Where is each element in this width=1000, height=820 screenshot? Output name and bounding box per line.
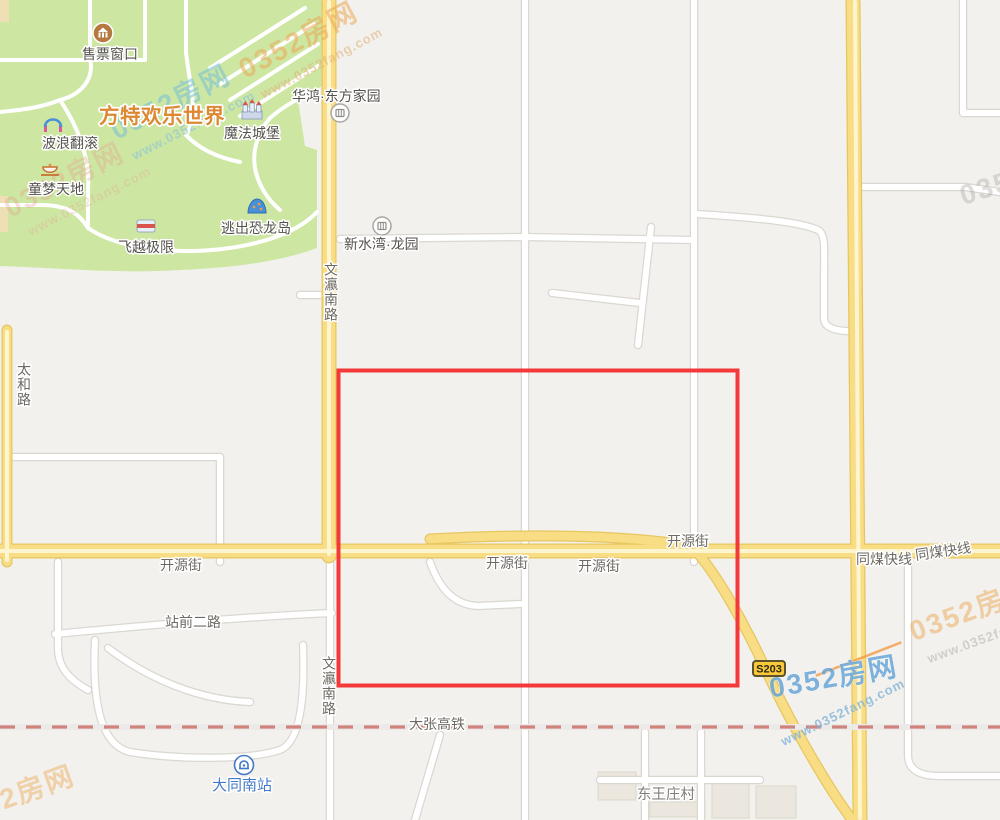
park-feature-wave[interactable]: 波浪翻滚 xyxy=(42,135,98,151)
road-label-kaiyuan-2: 开源街 xyxy=(486,555,528,571)
poi-label-village[interactable]: 东王庄村 xyxy=(637,785,695,803)
road-label-kaiyuan-3: 开源街 xyxy=(578,558,620,574)
park-title: 方特欢乐世界 xyxy=(99,104,225,128)
map-canvas[interactable]: 0352房网 www.0352fang.com 0352房网 www.0352f… xyxy=(0,0,1000,820)
ticket-office-icon[interactable] xyxy=(93,23,113,43)
poi-label-station[interactable]: 大同南站 xyxy=(212,777,272,794)
road-label-kaiyuan-4: 开源街 xyxy=(667,533,709,549)
train-station-icon[interactable] xyxy=(235,756,254,775)
road-label-wenying-1: 文瀛南路 xyxy=(323,262,339,322)
park-feature-castle[interactable]: 魔法城堡 xyxy=(224,125,280,141)
flight-ride-icon[interactable] xyxy=(137,220,155,232)
map-svg[interactable]: 0352房网 www.0352fang.com 0352房网 www.0352f… xyxy=(0,0,1000,820)
park-patch xyxy=(0,0,9,22)
poi-label-huahong[interactable]: 华鸿·东方家园 xyxy=(292,88,381,104)
park-feature-kids[interactable]: 童梦天地 xyxy=(28,181,84,197)
residence-icon-huahong[interactable] xyxy=(331,104,349,122)
road-label-railway: 大张高铁 xyxy=(409,716,465,732)
highway-badge-s203: S203 xyxy=(753,661,785,676)
road-label-zhanqian: 站前二路 xyxy=(165,614,221,630)
road-label-wenying-2: 文瀛南路 xyxy=(321,656,337,716)
castle-icon[interactable] xyxy=(242,99,262,119)
svg-text:S203: S203 xyxy=(756,664,782,676)
park-feature-flight[interactable]: 飞越极限 xyxy=(118,239,174,255)
road-label-tongmei-1: 同煤快线 xyxy=(856,551,912,567)
park-feature-dino[interactable]: 逃出恐龙岛 xyxy=(221,220,291,236)
road-label-kaiyuan-1: 开源街 xyxy=(160,557,202,573)
park-feature-ticket[interactable]: 售票窗口 xyxy=(82,46,138,62)
poi-label-xinshuiwan[interactable]: 新水湾·龙园 xyxy=(344,236,419,252)
road-label-taihe: 太和路 xyxy=(16,362,32,407)
residence-icon-xinshuiwan[interactable] xyxy=(373,217,391,235)
